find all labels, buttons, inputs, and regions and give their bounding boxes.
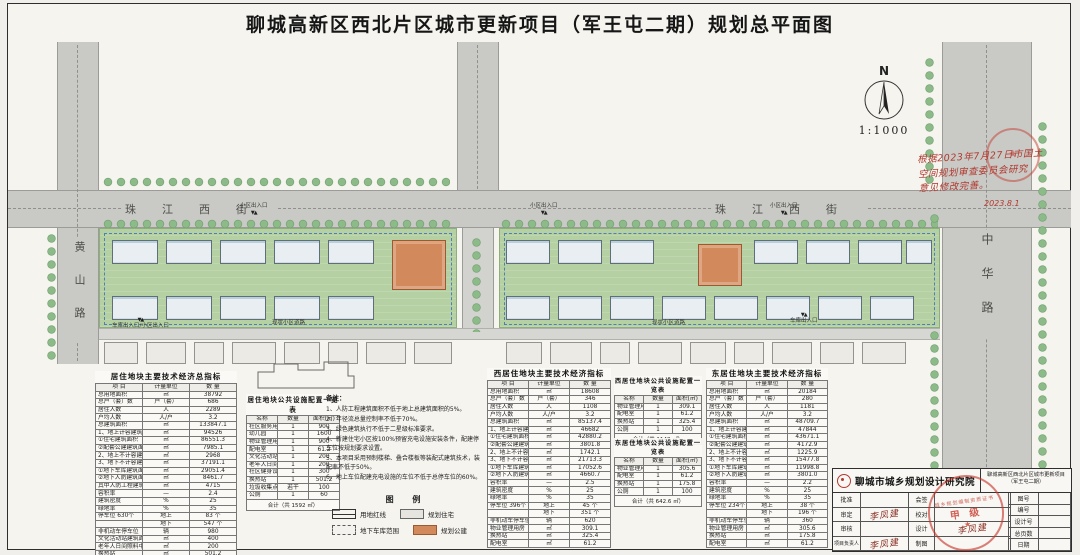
table-cell: 居住人数 <box>96 406 143 414</box>
table-cell: 社区服务用房 <box>247 423 278 431</box>
label-approve: 批准 <box>833 493 861 508</box>
table-cell: 1 <box>278 423 309 431</box>
table-cell: 换热站 <box>488 532 529 540</box>
sig-proofread <box>935 508 1011 523</box>
table-cell: ㎡ <box>747 532 787 540</box>
signature-handwriting: 李凤建 <box>957 522 989 537</box>
building <box>714 296 758 320</box>
table-row: 1、地上计容建筑面积㎡47844 <box>707 426 828 434</box>
table-cell: 居住人数 <box>707 403 747 411</box>
label-proofread: 校对 <box>909 508 935 523</box>
table-column-header: 数 量 <box>570 381 611 389</box>
existing-building <box>600 342 630 364</box>
table-row: 总用地面积㎡20184 <box>707 388 828 396</box>
table-cell: 38 个 <box>787 502 827 510</box>
table-cell: 1 <box>644 488 673 496</box>
table-cell <box>707 510 747 518</box>
signature-handwriting: 李凤建 <box>869 508 901 523</box>
table-cell: 1 <box>644 480 673 488</box>
table-row: ①住宅建筑面积㎡86551.3 <box>96 437 237 445</box>
label-drafting: 制图 <box>909 537 935 552</box>
institute-cell: 聊城市城乡规划设计研究院 <box>833 469 981 492</box>
table-cell: 老年人日间照料中心 <box>96 543 143 551</box>
table-cell: 总建筑面积 <box>96 421 143 429</box>
table-cell: 地下 <box>143 520 190 528</box>
table-row: 公厕1100 <box>615 488 702 496</box>
table-cell: ㎡ <box>747 540 787 548</box>
table-title: 东居住地块主要技术经济指标 <box>706 368 828 379</box>
redline-symbol-icon <box>332 509 356 519</box>
table-row: 非机动车停车位辆980 <box>96 528 237 536</box>
existing-building <box>414 342 452 364</box>
table-cell: 非机动车停车位 <box>96 528 143 536</box>
table-cell: 18608 <box>570 388 611 396</box>
table-cell: ㎡ <box>529 456 570 464</box>
table-cell: 幼儿园 <box>247 431 278 439</box>
handwritten-date: 2023.8.1 <box>984 199 1020 208</box>
table-cell: 3801.8 <box>570 441 611 449</box>
table-cell: — <box>747 479 787 487</box>
table-cell: 61.2 <box>673 473 702 481</box>
table-cell: 配电室 <box>247 446 278 454</box>
table-cell: 1 <box>278 446 309 454</box>
legend-label: 用地红线 <box>360 509 386 519</box>
table-cell: 325.4 <box>673 418 702 426</box>
table-cell: 61.2 <box>787 540 827 548</box>
road-middle-north <box>457 42 499 192</box>
table-row: 垃圾收集点若干100 <box>247 484 340 492</box>
table-cell: 若干 <box>278 484 309 492</box>
table-cell: 地上 <box>143 513 190 521</box>
legend-item-redline: 用地红线 <box>332 509 386 519</box>
table-cell: 总用地面积 <box>488 388 529 396</box>
entrance-marker-icon: ▼▲ <box>770 210 798 216</box>
table-row: 建筑密度%25 <box>707 487 828 495</box>
table-cell: 2289 <box>190 406 237 414</box>
table-cell: 绿地率 <box>707 494 747 502</box>
table-cell: 1 <box>278 453 309 461</box>
table-row: ①地下车库建筑面积㎡29051.4 <box>96 467 237 475</box>
table-cell: 公厕 <box>615 488 644 496</box>
table-cell: % <box>143 497 190 505</box>
table-cell: ㎡ <box>143 551 190 555</box>
table-row: 容积率—2.2 <box>707 479 828 487</box>
table-cell: 换热站 <box>707 532 747 540</box>
label-countersign: 会签 <box>909 493 935 508</box>
entrance-text: 小区出入口 <box>240 203 268 209</box>
legend: 图 例 用地红线 规划住宅 地下车库范围 规划公建 <box>332 494 482 541</box>
entrance-marker-icon: ▼▲ <box>530 210 558 216</box>
table-row: 总户（套）数户（套）686 <box>96 399 237 407</box>
table-row: 总建筑面积㎡85137.4 <box>488 418 611 426</box>
building <box>806 240 850 264</box>
table-row: 2、地上不计容建筑面积㎡1742.1 <box>488 449 611 457</box>
value-total-pages <box>1039 528 1071 540</box>
table-row: 公厕160 <box>247 491 340 499</box>
table-row: 1、地上计容建筑面积㎡46682 <box>488 426 611 434</box>
table-cell: 35 <box>787 494 827 502</box>
existing-building <box>550 342 592 364</box>
table-cell: 3.2 <box>570 411 611 419</box>
table-cell: 1 <box>644 403 673 411</box>
table-row: 配电室161.2 <box>615 473 702 481</box>
building <box>274 240 320 264</box>
table-cell: 2、地上不计容建筑面积 <box>96 452 143 460</box>
table-cell: 3、地下不计容建筑面积 <box>707 456 747 464</box>
public-building-symbol-icon <box>413 525 437 535</box>
value-date <box>1039 539 1071 551</box>
table-cell: ㎡ <box>529 472 570 480</box>
sig-design: 李凤建 <box>935 522 1011 537</box>
table-cell: 94526 <box>190 429 237 437</box>
table-column-header: 计量单位 <box>747 381 787 389</box>
project-name-cell: 聊城高新区西北片区城市更新项目 （军王屯二期） <box>981 469 1071 492</box>
huangshan-label: 黄山路 <box>71 238 87 343</box>
existing-building <box>366 342 406 364</box>
table-cell: 37191.1 <box>190 459 237 467</box>
table-column-header: 项 目 <box>488 381 529 389</box>
table-cell: 17052.6 <box>570 464 611 472</box>
table-cell: 42880.2 <box>570 434 611 442</box>
table-cell: 总用地面积 <box>96 391 143 399</box>
list-item: 3、绿色建筑执行不低于二星级标准要求。 <box>326 425 484 434</box>
project-name-line1: 聊城高新区西北片区城市更新项目 <box>981 472 1071 479</box>
north-arrow: N 1:1000 <box>852 64 916 137</box>
table-cell: 总户（套）数 <box>488 396 529 404</box>
table-cell: ②配套公建建筑面积 <box>707 441 747 449</box>
table-cell <box>488 510 529 518</box>
table-row: 换热站㎡325.4 <box>488 532 611 540</box>
table-row: 绿地率%35 <box>96 505 237 513</box>
table-cell: ㎡ <box>143 421 190 429</box>
existing-building <box>638 342 682 364</box>
building <box>662 296 706 320</box>
table-cell: 3.2 <box>190 414 237 422</box>
table-cell: 1108 <box>570 403 611 411</box>
table-cell: 1225.9 <box>787 449 827 457</box>
table-cell: ㎡ <box>529 464 570 472</box>
table-row: 配电室㎡61.2 <box>707 540 828 548</box>
sig-drafting <box>935 537 1011 552</box>
sig-project-lead: 李凤建 <box>861 537 909 552</box>
entrance-label: ▼▲ 车库出入口 <box>790 312 818 325</box>
table-cell: 360 <box>787 517 827 525</box>
title-block: 聊城市城乡规划设计研究院 聊城高新区西北片区城市更新项目 （军王屯二期） 批准 … <box>832 468 1072 552</box>
table-row: 地下196 个 <box>707 510 828 518</box>
sig-countersign <box>935 493 1011 508</box>
label-date: 日期 <box>1009 539 1039 551</box>
table-cell: ㎡ <box>143 543 190 551</box>
building <box>274 296 320 320</box>
table-cell: 停车位 396个 <box>488 502 529 510</box>
table-cell: ㎡ <box>529 532 570 540</box>
table-cell: ㎡ <box>529 540 570 548</box>
table-cell: 15477.8 <box>787 456 827 464</box>
table-cell: ㎡ <box>143 475 190 483</box>
table-cell: ㎡ <box>529 441 570 449</box>
table-cell: % <box>747 487 787 495</box>
table-cell: 620 <box>570 517 611 525</box>
table-row: 公厕1100 <box>615 426 702 434</box>
handwritten-note: 根据2023年7月27日市国土空间规划审查委员会研究意见修改完善。 <box>917 147 1051 198</box>
table-cell: 物业管理用房 <box>247 438 278 446</box>
legend-item-garage: 地下车库范围 <box>332 525 399 535</box>
table-cell: 总户（套）数 <box>96 399 143 407</box>
table-cell: ①地下车库建筑面积 <box>96 467 143 475</box>
table-row: 文化活动站建筑面积㎡400 <box>96 535 237 543</box>
notes-title: 备注： <box>326 394 484 404</box>
existing-building <box>772 342 812 364</box>
table-cell: 2.2 <box>787 479 827 487</box>
value-drawing-no <box>1039 493 1071 505</box>
table-cell: ㎡ <box>529 418 570 426</box>
table-row: 居住人数人1181 <box>707 403 828 411</box>
table-cell: 46682 <box>570 426 611 434</box>
table-row: 户均人数人/户3.2 <box>707 411 828 419</box>
label-design-no: 设计号 <box>1009 516 1039 528</box>
table-cell: 1 <box>644 465 673 473</box>
table-cell: 3801.0 <box>787 472 827 480</box>
table-cell: 2968 <box>190 452 237 460</box>
table-row: 停车位 630个地上83 个 <box>96 513 237 521</box>
table-cell: 配电室 <box>488 540 529 548</box>
table-cell: 4660.7 <box>570 472 611 480</box>
table-cell: 其中人防工程建筑面积 <box>96 482 143 490</box>
table-row: ①地下车库建筑面积㎡11998.8 <box>707 464 828 472</box>
table-cell: 25 <box>570 487 611 495</box>
table-row: 总建筑面积㎡133847.1 <box>96 421 237 429</box>
table-cell: ㎡ <box>143 437 190 445</box>
building <box>558 296 602 320</box>
table-cell: ㎡ <box>529 525 570 533</box>
table-row: 1、地上计容建筑面积㎡94526 <box>96 429 237 437</box>
table-cell: ㎡ <box>143 459 190 467</box>
table-column-header: 计量单位 <box>143 384 190 392</box>
institute-logo-icon <box>837 474 851 488</box>
table-cell: 社区健身设施 <box>247 469 278 477</box>
list-item: 1、人防工程建筑面积不低于地上总建筑面积的5%。 <box>326 405 484 414</box>
table-cell: ①住宅建筑面积 <box>96 437 143 445</box>
table-row: 物业管理用房1309.1 <box>615 403 702 411</box>
existing-building <box>506 342 542 364</box>
table-row: 配电室161.2 <box>615 411 702 419</box>
entrance-label: 小区出入口 ▼▲ <box>770 203 798 216</box>
road-note: 现状小区道路 <box>272 320 305 327</box>
table-cell: 非机动车停车位 <box>707 517 747 525</box>
notes-list: 1、人防工程建筑面积不低于地上总建筑面积的5%。2、年径流总量控制率不低于70%… <box>326 405 484 482</box>
table-row: 物业管理用房㎡309.1 <box>488 525 611 533</box>
entrance-text: 小区出入口 <box>770 203 798 209</box>
table-cell: 7985.1 <box>190 444 237 452</box>
table-cell: 换热站 <box>96 551 143 555</box>
table-cell: 980 <box>190 528 237 536</box>
table-cell: 2.4 <box>190 490 237 498</box>
table-cell: 61.2 <box>673 411 702 419</box>
table-cell: ㎡ <box>529 388 570 396</box>
building <box>906 240 932 264</box>
table-row: 容积率—2.4 <box>96 490 237 498</box>
table-row: ②地下人防建筑面积㎡8461.7 <box>96 475 237 483</box>
table-cell: 400 <box>190 535 237 543</box>
table-cell: ㎡ <box>529 426 570 434</box>
table-cell: 绿地率 <box>488 494 529 502</box>
table-row: 居住人数人1108 <box>488 403 611 411</box>
north-letter: N <box>852 64 916 78</box>
table-cell: 3.2 <box>787 411 827 419</box>
building <box>506 240 550 264</box>
table-column-header: 数量 <box>644 458 673 466</box>
table-column-header: 数量 <box>278 416 309 424</box>
legend-label: 规划公建 <box>441 525 467 535</box>
table-title: 东居住地块公共设施配置一览表 <box>614 438 702 456</box>
table-cell: 建筑密度 <box>707 487 747 495</box>
table-row: 建筑密度%25 <box>488 487 611 495</box>
table-cell: 1 <box>644 411 673 419</box>
table-row: 换热站1175.8 <box>615 480 702 488</box>
table-cell: 物业管理用房 <box>488 525 529 533</box>
table-cell: 1 <box>278 438 309 446</box>
table-cell: 133847.1 <box>190 421 237 429</box>
table-cell: ㎡ <box>747 525 787 533</box>
table-cell: 人/户 <box>747 411 787 419</box>
table-cell: 换热站 <box>615 418 644 426</box>
table-cell: 196 个 <box>787 510 827 518</box>
public-building-west <box>392 240 446 290</box>
table-cell: ②配套公建建筑面积 <box>488 441 529 449</box>
page-title: 聊城高新区西北片区城市更新项目（军王屯二期）规划总平面图 <box>0 10 1080 37</box>
table-cell: 1 <box>278 469 309 477</box>
table-cell: 换热站 <box>615 480 644 488</box>
existing-road-text: 现状小区道路 <box>652 320 685 326</box>
building <box>328 296 374 320</box>
table-row: ①住宅建筑面积㎡42880.2 <box>488 434 611 442</box>
value-serial-no <box>1039 505 1071 517</box>
road-note: 现状小区道路 <box>652 320 685 327</box>
table-cell: 户均人数 <box>707 411 747 419</box>
table-total-indicators: 居住地块主要技术经济总指标 项 目计量单位数 量 总用地面积㎡38792总户（套… <box>95 371 237 555</box>
list-item: 5、本项目采用预制楼梯、叠合楼板等装配式建筑技术，装配率不低于50%。 <box>326 454 484 472</box>
table-column-header: 数量 <box>644 396 673 404</box>
table-row: 3、地下不计容建筑面积㎡15477.8 <box>707 456 828 464</box>
table-cell: 305.6 <box>787 525 827 533</box>
table-cell: 公厕 <box>615 426 644 434</box>
building <box>112 240 158 264</box>
table-cell: ㎡ <box>143 482 190 490</box>
table-cell: 停车位 630个 <box>96 513 143 521</box>
table-cell: 公厕 <box>247 491 278 499</box>
table-cell: 户（套） <box>529 396 570 404</box>
table-cell: 351 个 <box>570 510 611 518</box>
table-cell: 346 <box>570 396 611 404</box>
table-cell: 86551.3 <box>190 437 237 445</box>
building <box>328 240 374 264</box>
table-row: 换热站㎡501.2 <box>96 551 237 555</box>
table-cell: ㎡ <box>747 456 787 464</box>
table-cell: ㎡ <box>747 434 787 442</box>
table-cell: 总建筑面积 <box>707 418 747 426</box>
institute-name: 聊城市城乡规划设计研究院 <box>855 474 975 488</box>
table-cell: 文化活动站建筑面积 <box>96 535 143 543</box>
table-row: 非机动车停车位辆360 <box>707 517 828 525</box>
table-cell: 建筑密度 <box>96 497 143 505</box>
table-row: 绿地率%35 <box>488 494 611 502</box>
table-cell: 总建筑面积 <box>488 418 529 426</box>
table-cell: 175.8 <box>787 532 827 540</box>
table-cell: 总用地面积 <box>707 388 747 396</box>
table-cell: 83 个 <box>190 513 237 521</box>
table-cell: 45 个 <box>570 502 611 510</box>
table-row: ①住宅建筑面积㎡43671.1 <box>707 434 828 442</box>
table-cell: 1、地上计容建筑面积 <box>488 426 529 434</box>
existing-road-text: 现状小区道路 <box>272 320 305 326</box>
table-row: 建筑密度%25 <box>96 497 237 505</box>
table-cell: 地下 <box>747 510 787 518</box>
table-row: ②地下人防建筑面积㎡3801.0 <box>707 472 828 480</box>
table-cell: 309.1 <box>673 403 702 411</box>
table-row: 老年人日间照料中心㎡200 <box>96 543 237 551</box>
existing-building <box>194 342 224 364</box>
table-cell: ②地下人防建筑面积 <box>488 472 529 480</box>
table-cell: 1、地上计容建筑面积 <box>96 429 143 437</box>
table-cell: 户均人数 <box>488 411 529 419</box>
existing-building <box>104 342 138 364</box>
table-cell: 38792 <box>190 391 237 399</box>
table-cell: 总户（套）数 <box>707 396 747 404</box>
table-row: 总户（套）数户（套）346 <box>488 396 611 404</box>
legend-label: 规划住宅 <box>428 509 454 519</box>
table-cell: 换热站 <box>247 476 278 484</box>
plan-sheet: 聊城高新区西北片区城市更新项目（军王屯二期）规划总平面图 珠江西街 珠江西街 黄… <box>0 0 1080 555</box>
table-cell: 人 <box>747 403 787 411</box>
drawing-number-grid: 图号 编号 设计号 总页数 日期 <box>1008 493 1071 551</box>
table-cell: ㎡ <box>747 388 787 396</box>
title-block-header: 聊城市城乡规划设计研究院 聊城高新区西北片区城市更新项目 （军王屯二期） <box>833 469 1071 493</box>
table-cell: 4172.9 <box>787 441 827 449</box>
table-column-header: 面积(㎡) <box>673 458 702 466</box>
table-cell: 25 <box>787 487 827 495</box>
table-cell: 43671.1 <box>787 434 827 442</box>
table-cell <box>96 520 143 528</box>
table-cell: 垃圾收集点 <box>247 484 278 492</box>
table-cell: 1 <box>644 473 673 481</box>
table-cell: 1、地上计容建筑面积 <box>707 426 747 434</box>
table-cell: 建筑密度 <box>488 487 529 495</box>
table-cell: 21713.3 <box>570 456 611 464</box>
entrance-text: 小区出入口 <box>530 203 558 209</box>
legend-item-public: 规划公建 <box>413 525 467 535</box>
table-cell: 户（套） <box>143 399 190 407</box>
table-column-header: 名称 <box>615 396 644 404</box>
building <box>220 296 266 320</box>
table-cell: 非机动车停车位 <box>488 517 529 525</box>
table-row: 地下351 个 <box>488 510 611 518</box>
table-row: 总用地面积㎡18608 <box>488 388 611 396</box>
building <box>166 296 212 320</box>
legend-title: 图 例 <box>332 494 482 505</box>
table-cell: 2、地上不计容建筑面积 <box>488 449 529 457</box>
value-design-no <box>1039 516 1071 528</box>
building <box>858 240 902 264</box>
table-row: 3、地下不计容建筑面积㎡37191.1 <box>96 459 237 467</box>
table-cell: ①地下车库建筑面积 <box>707 464 747 472</box>
table-cell: ㎡ <box>747 464 787 472</box>
table-cell: ㎡ <box>747 426 787 434</box>
table-cell: 686 <box>190 399 237 407</box>
table-row: ②配套公建建筑面积㎡7985.1 <box>96 444 237 452</box>
list-item: 2、年径流总量控制率不低于70%。 <box>326 415 484 424</box>
table-cell: 3、地下不计容建筑面积 <box>488 456 529 464</box>
label-serial-no: 编号 <box>1009 505 1039 517</box>
